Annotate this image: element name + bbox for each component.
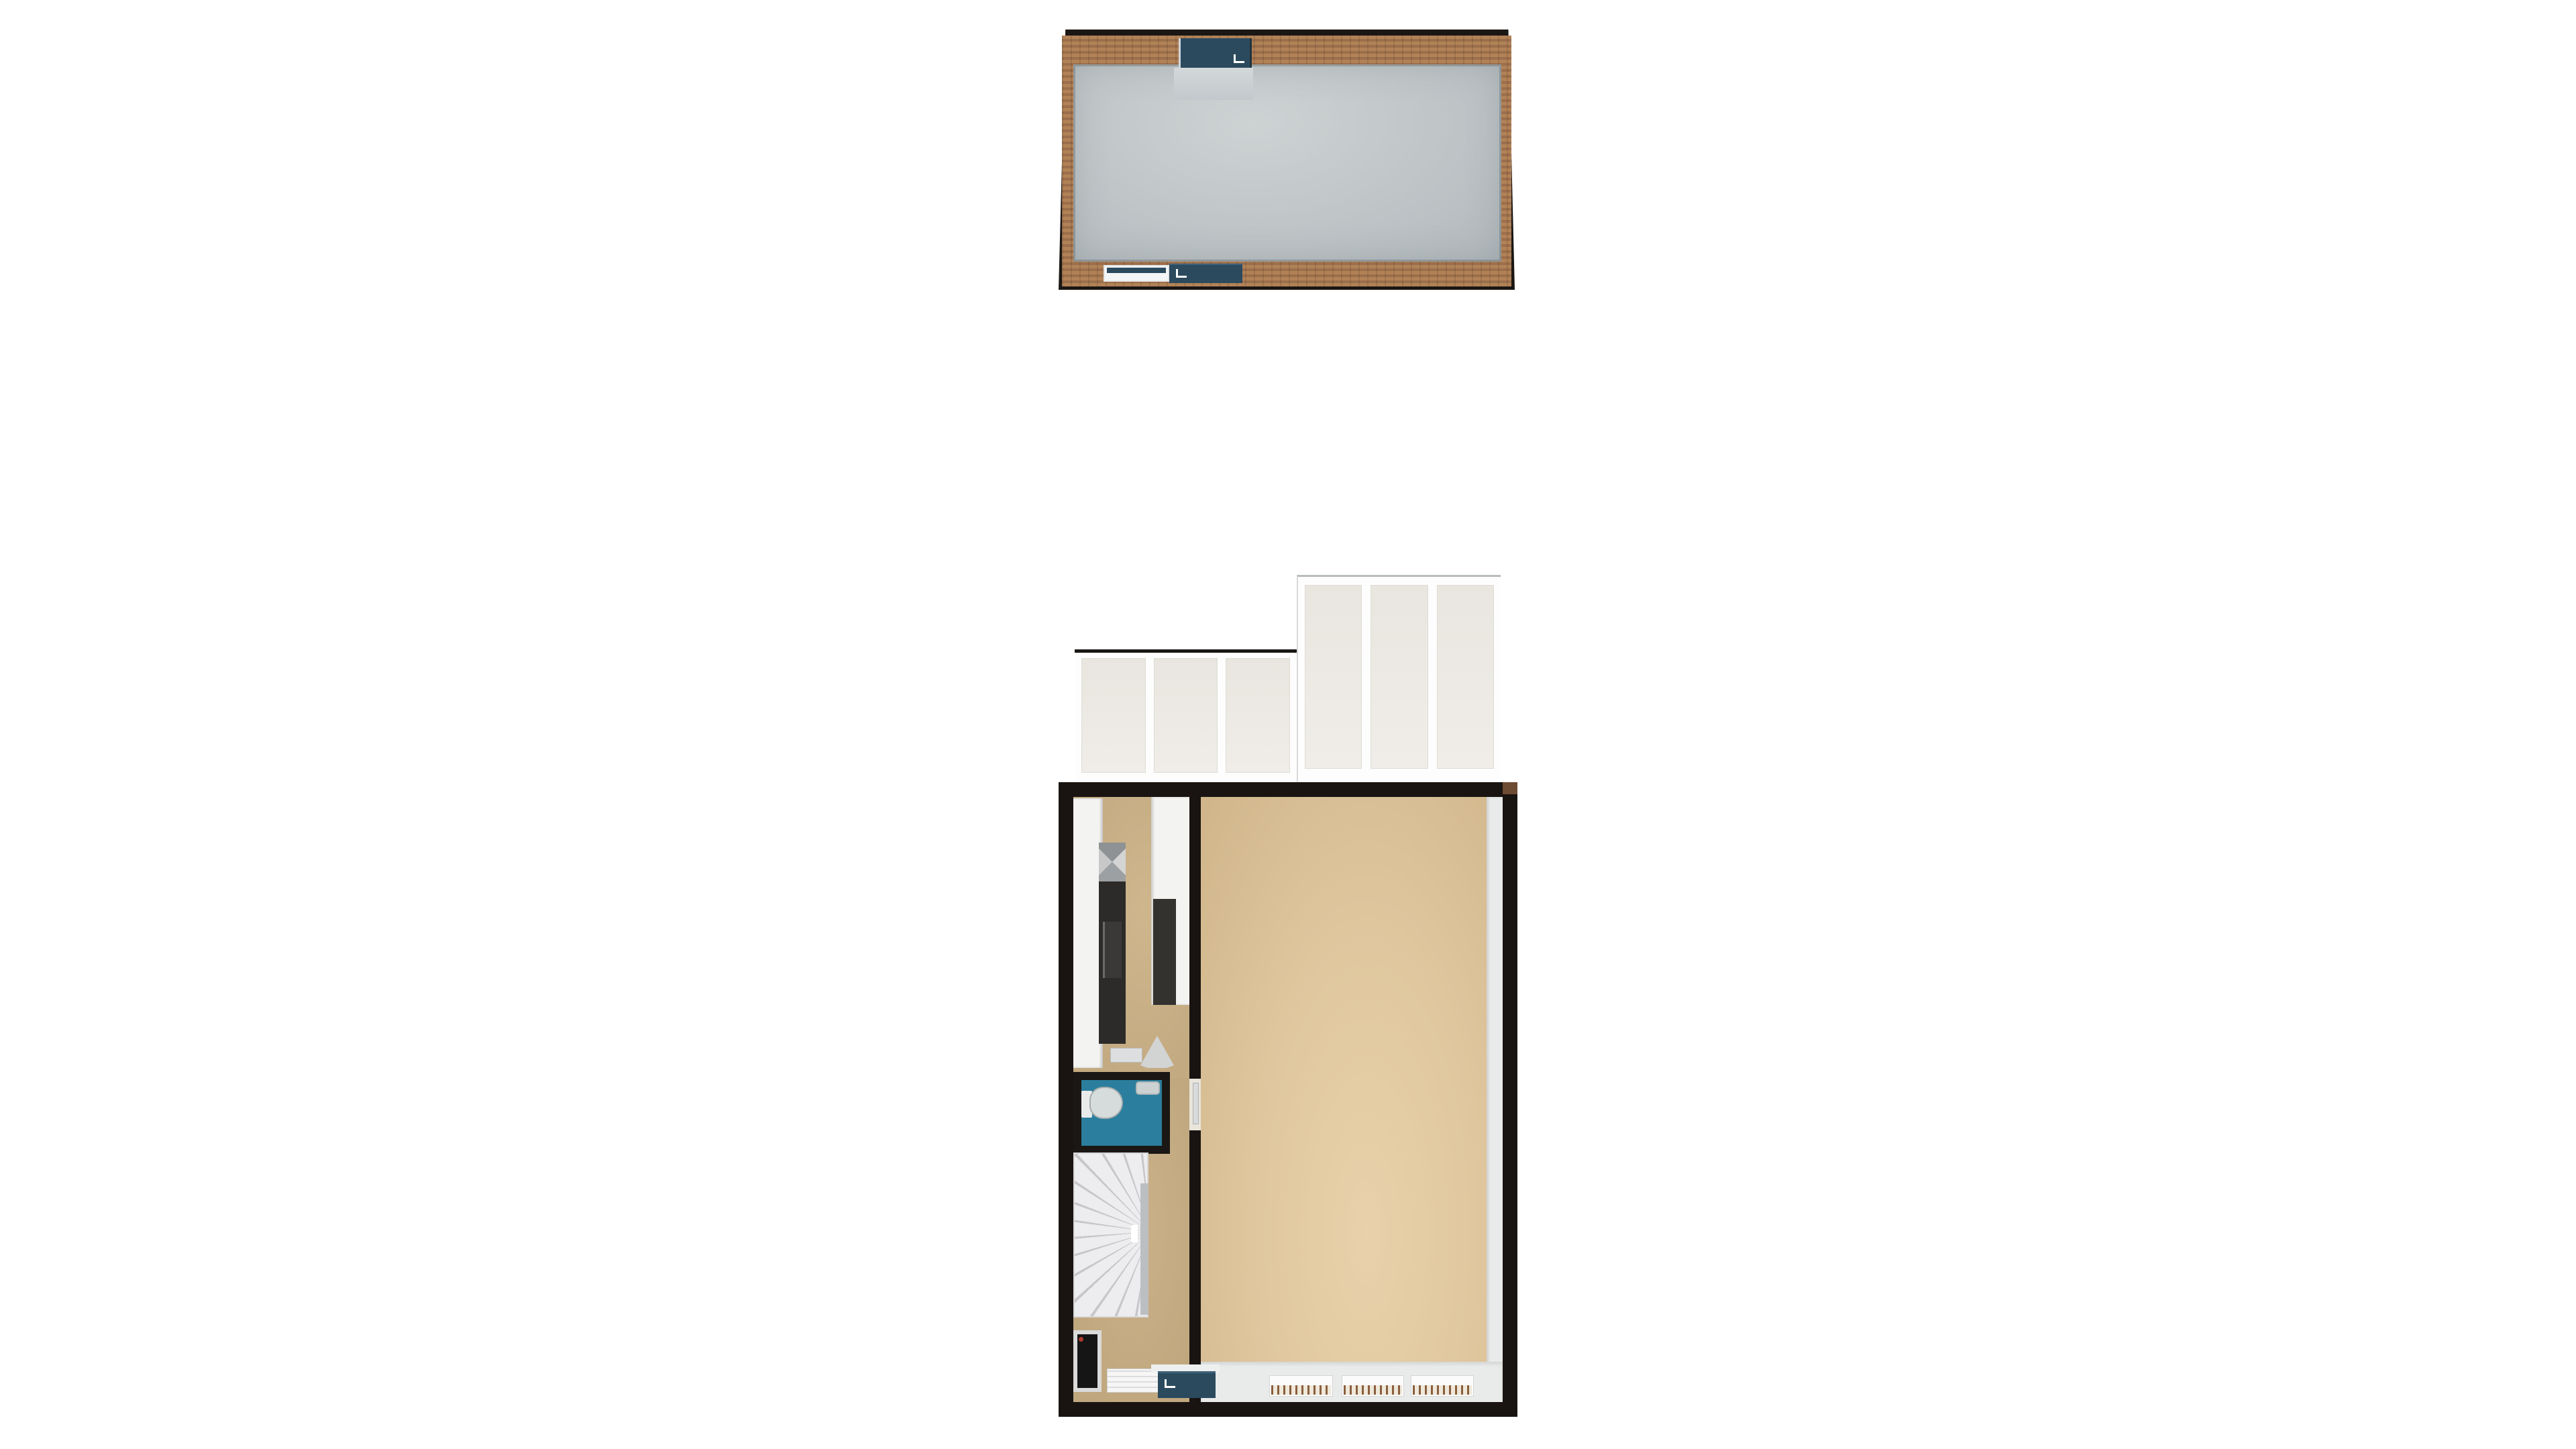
front-door bbox=[1158, 1371, 1216, 1398]
toilet-bowl bbox=[1089, 1087, 1123, 1119]
kitchen-appliance-run bbox=[1099, 843, 1126, 1044]
main-floor-walls bbox=[1059, 782, 1517, 1417]
ground-floor-plan bbox=[1059, 574, 1517, 1417]
door-handle-icon bbox=[1165, 1379, 1175, 1388]
kitchen-chair bbox=[1140, 1036, 1174, 1068]
stair-stringer bbox=[1140, 1183, 1148, 1315]
kitchen-sink-drainer bbox=[1099, 843, 1126, 881]
window-glazing bbox=[1107, 268, 1166, 273]
door-handle-icon bbox=[1176, 269, 1187, 278]
radiator-hatch bbox=[1413, 1385, 1472, 1395]
winder-staircase bbox=[1073, 1152, 1148, 1318]
loft-entry-door bbox=[1179, 38, 1252, 68]
radiator-hatch bbox=[1344, 1385, 1402, 1395]
kitchen bbox=[1073, 797, 1189, 1078]
boiler-recess bbox=[1073, 1330, 1102, 1392]
window-sill-right bbox=[1487, 797, 1503, 1402]
kitchen-oven bbox=[1103, 922, 1122, 978]
window-sill-bottom bbox=[1201, 1362, 1503, 1402]
loft-window bbox=[1104, 265, 1169, 282]
glass-panel bbox=[1437, 585, 1494, 769]
living-room bbox=[1201, 797, 1503, 1402]
loft-floor bbox=[1073, 64, 1501, 262]
divider-wall-upper bbox=[1189, 797, 1201, 1079]
interior-door-leaf bbox=[1193, 1083, 1199, 1124]
glass-panel bbox=[1371, 585, 1428, 769]
radiator bbox=[1269, 1375, 1333, 1397]
loft-rear-door bbox=[1169, 264, 1242, 283]
door-threshold bbox=[1174, 68, 1253, 100]
door-handle-icon bbox=[1234, 54, 1244, 63]
ground-floor-rooms bbox=[1073, 797, 1503, 1402]
glass-panel bbox=[1305, 585, 1362, 769]
boiler-indicator-icon bbox=[1079, 1337, 1083, 1342]
kitchen-cabinet-dark bbox=[1153, 899, 1176, 1005]
conservatory-left-section bbox=[1075, 649, 1297, 784]
kitchen-shelf bbox=[1110, 1048, 1142, 1063]
wc-room bbox=[1073, 1072, 1170, 1154]
radiator-hatch bbox=[1271, 1385, 1331, 1395]
glass-panel bbox=[1081, 658, 1146, 773]
wc-basin bbox=[1136, 1081, 1160, 1095]
radiator bbox=[1411, 1375, 1474, 1397]
conservatory-right-section bbox=[1297, 575, 1501, 784]
divider-wall-lower bbox=[1189, 1130, 1201, 1374]
boiler-unit bbox=[1077, 1334, 1097, 1388]
upper-floor-plan bbox=[1059, 30, 1515, 290]
radiator bbox=[1342, 1375, 1404, 1397]
glass-panel bbox=[1154, 658, 1218, 773]
wall-corner-accent bbox=[1503, 782, 1517, 794]
glass-panel bbox=[1226, 658, 1290, 773]
stair-newel bbox=[1131, 1225, 1138, 1242]
